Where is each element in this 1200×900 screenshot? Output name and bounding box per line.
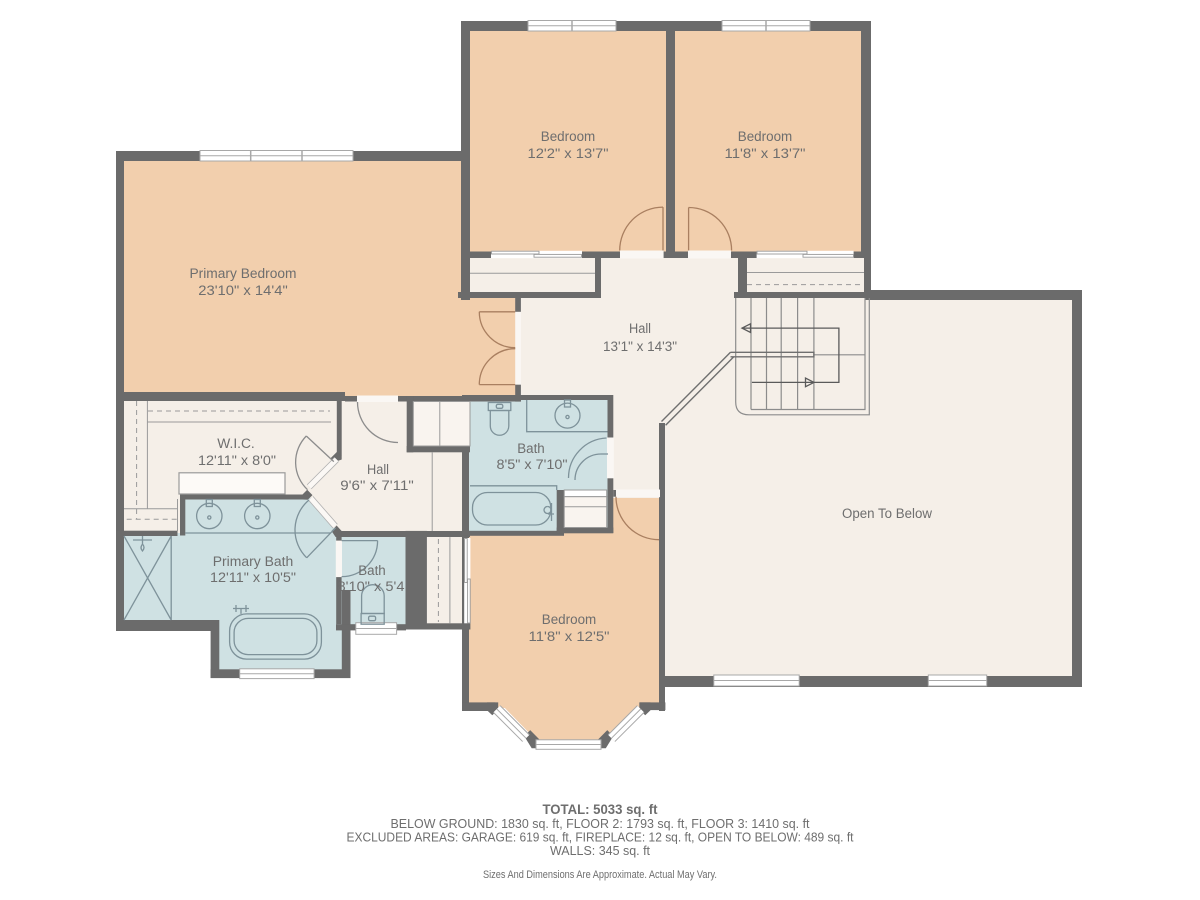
svg-text:Bath: Bath <box>517 441 545 456</box>
svg-text:Hall: Hall <box>367 462 389 477</box>
svg-text:Primary Bedroom: Primary Bedroom <box>190 266 297 281</box>
svg-text:Bedroom: Bedroom <box>541 129 596 144</box>
svg-text:Sizes And Dimensions Are Appro: Sizes And Dimensions Are Approximate. Ac… <box>483 869 717 881</box>
svg-text:Bedroom: Bedroom <box>542 612 597 627</box>
svg-text:Bath: Bath <box>358 563 386 578</box>
svg-text:Bedroom: Bedroom <box>738 129 793 144</box>
svg-text:TOTAL: 5033 sq. ft: TOTAL: 5033 sq. ft <box>543 802 658 817</box>
svg-text:23'10" x 14'4": 23'10" x 14'4" <box>198 283 288 298</box>
svg-text:13'1" x 14'3": 13'1" x 14'3" <box>603 339 677 354</box>
svg-text:W.I.C.: W.I.C. <box>217 436 255 451</box>
svg-text:WALLS: 345 sq. ft: WALLS: 345 sq. ft <box>550 843 650 858</box>
svg-text:11'8" x 12'5": 11'8" x 12'5" <box>529 629 610 644</box>
svg-text:12'11" x 10'5": 12'11" x 10'5" <box>210 570 296 585</box>
svg-text:12'11" x 8'0": 12'11" x 8'0" <box>198 453 276 468</box>
svg-text:8'10" x 5'4: 8'10" x 5'4 <box>338 579 406 594</box>
svg-text:11'8" x 13'7": 11'8" x 13'7" <box>725 146 806 161</box>
svg-text:12'2" x 13'7": 12'2" x 13'7" <box>528 146 609 161</box>
svg-text:Primary Bath: Primary Bath <box>213 554 294 569</box>
svg-text:8'5" x 7'10": 8'5" x 7'10" <box>497 457 568 472</box>
svg-text:Open To Below: Open To Below <box>842 506 932 521</box>
svg-text:Hall: Hall <box>629 321 651 336</box>
svg-text:9'6" x 7'11": 9'6" x 7'11" <box>340 478 414 493</box>
